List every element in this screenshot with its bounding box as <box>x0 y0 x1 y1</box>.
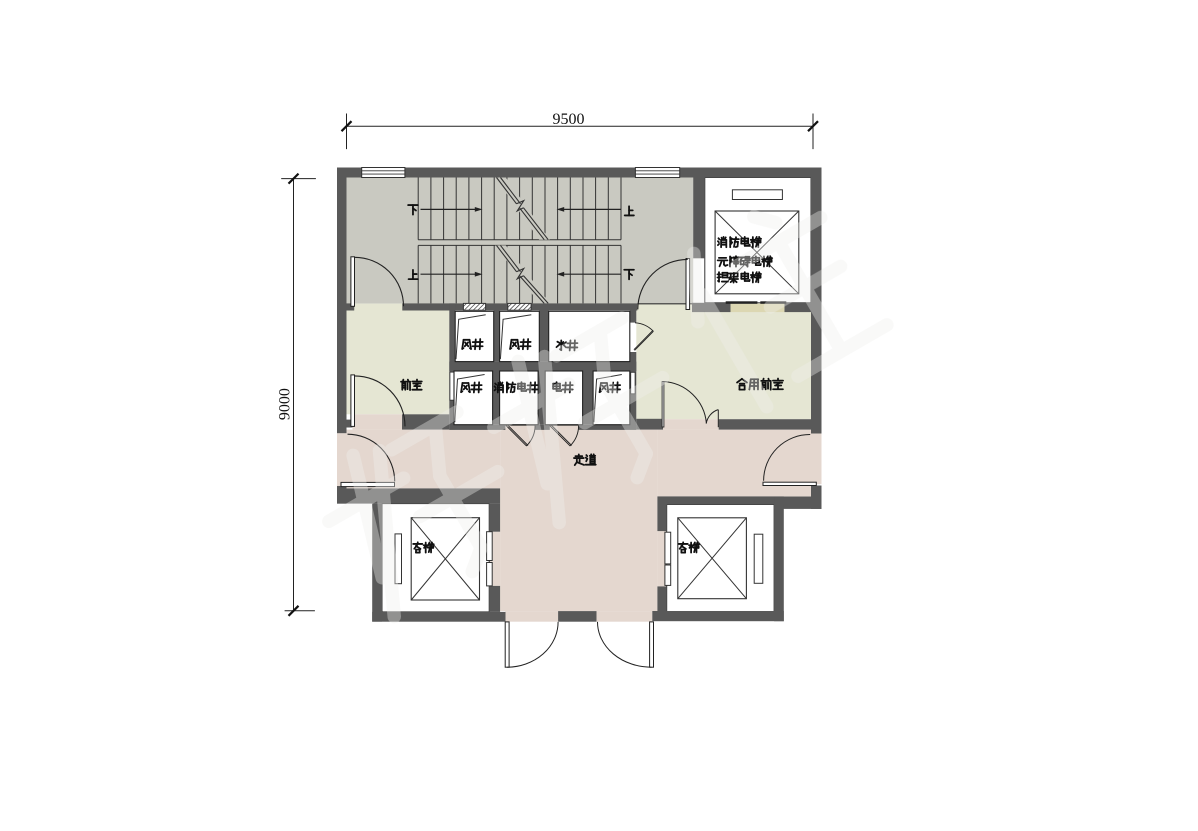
svg-text:9500: 9500 <box>553 111 585 128</box>
svg-text:9000: 9000 <box>277 388 294 420</box>
